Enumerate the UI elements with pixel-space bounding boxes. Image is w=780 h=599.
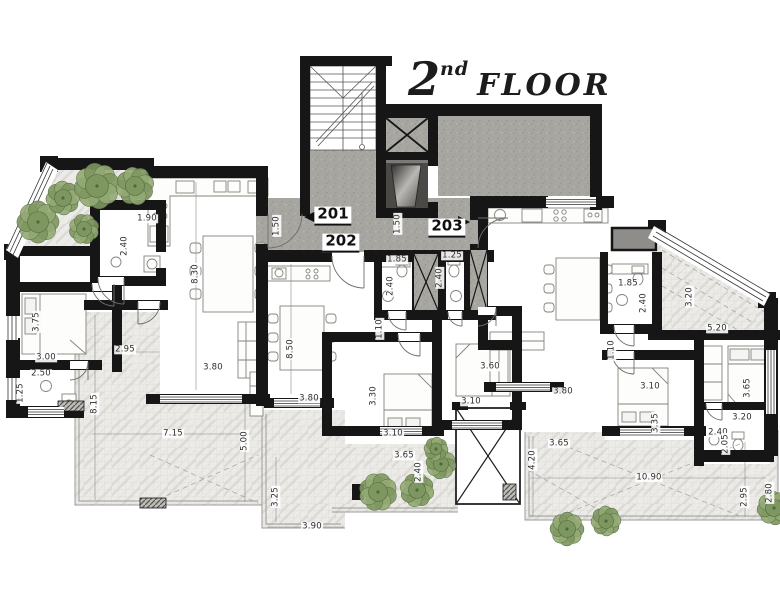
plant-icon [400, 473, 433, 506]
elevator-icon [386, 158, 428, 214]
plant-icon [424, 437, 448, 461]
floor-word: FLOOR [477, 68, 612, 103]
plant-icon [116, 167, 153, 204]
plant-icon [74, 163, 120, 209]
bed-203-mid [618, 368, 668, 426]
floor-number: 2 [408, 52, 440, 106]
floor-plan-drawing [0, 0, 780, 599]
bed-202-a [384, 374, 432, 432]
washbasin [41, 381, 52, 392]
ordinal-suffix: nd [440, 58, 469, 80]
common-room-floor [438, 116, 590, 196]
plant-icon [550, 512, 584, 546]
staircase [310, 66, 376, 150]
dining-table-201 [190, 236, 266, 312]
plant-icon [591, 506, 621, 536]
bed-201 [22, 294, 86, 354]
closet-203 [612, 228, 656, 250]
laundry-basin [111, 257, 121, 267]
floor-title: 2ndFLOOR [408, 56, 598, 103]
floor-plan-canvas: 1.902.408.301.501.503.753.002.501.252.95… [0, 0, 780, 599]
